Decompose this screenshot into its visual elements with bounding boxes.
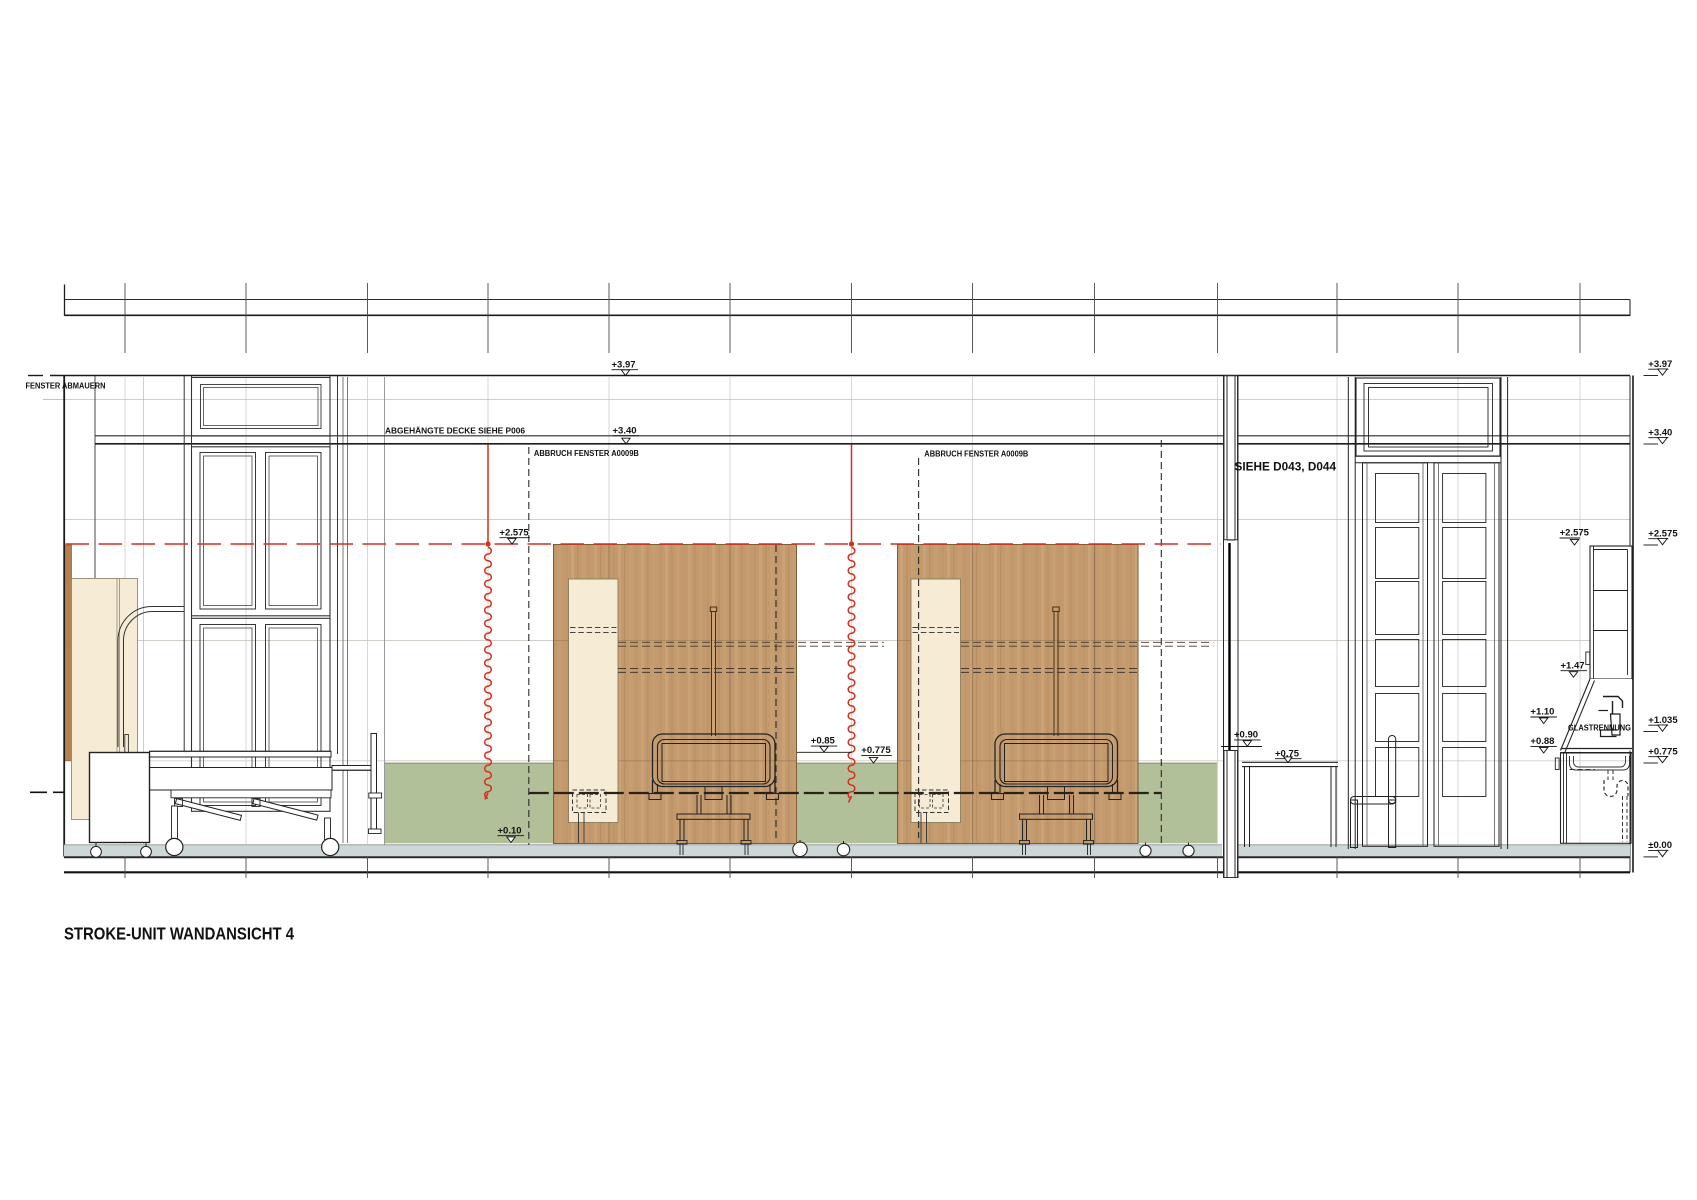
svg-text:+0.85: +0.85 [811, 736, 836, 747]
svg-text:ABGEHÄNGTE DECKE SIEHE P006: ABGEHÄNGTE DECKE SIEHE P006 [385, 425, 525, 435]
svg-text:STROKE-UNIT WANDANSICHT 4: STROKE-UNIT WANDANSICHT 4 [64, 924, 294, 944]
svg-text:+0.88: +0.88 [1530, 736, 1554, 747]
svg-text:+0.775: +0.775 [861, 745, 891, 756]
svg-text:+2.575: +2.575 [1560, 528, 1590, 539]
svg-text:+2.575: +2.575 [499, 527, 529, 538]
svg-text:+0.90: +0.90 [1234, 730, 1258, 741]
svg-text:+1.47: +1.47 [1561, 660, 1585, 671]
svg-text:±0.00: ±0.00 [1648, 840, 1672, 851]
svg-text:ABBRUCH FENSTER A0009B: ABBRUCH FENSTER A0009B [534, 448, 639, 458]
svg-text:+3.97: +3.97 [1648, 359, 1672, 370]
svg-text:+1.035: +1.035 [1648, 715, 1678, 726]
svg-text:+0.775: +0.775 [1648, 746, 1678, 757]
svg-text:+3.40: +3.40 [1648, 427, 1672, 438]
svg-text:GLASTRENNUNG: GLASTRENNUNG [1568, 722, 1631, 732]
svg-text:+2.575: +2.575 [1648, 528, 1678, 539]
svg-text:+1.10: +1.10 [1530, 707, 1554, 718]
svg-text:+3.40: +3.40 [613, 425, 637, 436]
svg-text:+0.10: +0.10 [498, 825, 522, 836]
svg-text:+3.97: +3.97 [612, 359, 636, 370]
svg-text:ABBRUCH FENSTER A0009B: ABBRUCH FENSTER A0009B [924, 449, 1028, 459]
svg-text:FENSTER ABMAUERN: FENSTER ABMAUERN [26, 380, 106, 390]
svg-text:SIEHE D043, D044: SIEHE D043, D044 [1235, 460, 1337, 474]
